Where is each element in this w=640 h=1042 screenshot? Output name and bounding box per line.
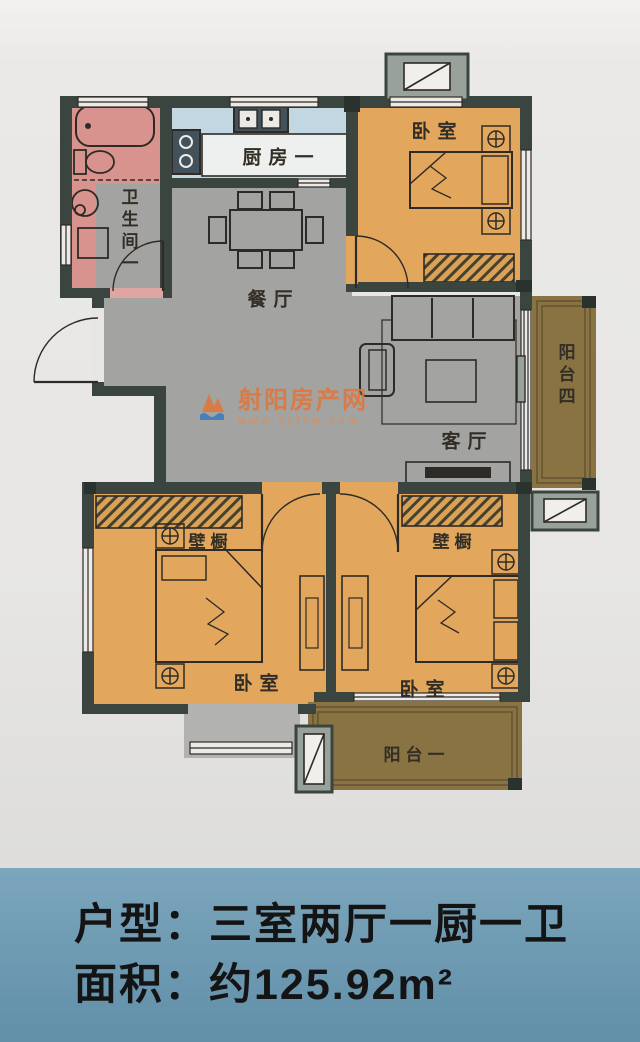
- kitchen-top-window: [230, 97, 318, 107]
- closet-right-band: [402, 496, 502, 526]
- kitchen-pass-through: [298, 179, 330, 187]
- kitchen-label: 厨房一: [235, 143, 320, 170]
- bedroom-top-window: [390, 97, 462, 107]
- entrance-door: [34, 308, 104, 382]
- bedroom-top-label: 卧室: [404, 117, 463, 144]
- bathroom-label: 卫生间一: [116, 188, 141, 276]
- closet-right-label: 壁橱: [428, 528, 477, 553]
- stove: [172, 130, 200, 174]
- area-text: 面积：约125.92m²: [74, 950, 454, 1012]
- balcony-bottom-label: 阳台一: [379, 741, 450, 766]
- kitchen-sink: [234, 106, 288, 132]
- radiator-band: [424, 254, 514, 282]
- bedroom-left-window: [83, 548, 93, 652]
- ac-platform-top: [386, 54, 468, 100]
- footer-band: 户型：三室两厅一厨一卫 面积：约125.92m²: [0, 868, 640, 1042]
- balcony-right-label: 阳台四: [553, 343, 578, 409]
- bedroom-top-right-window: [521, 150, 531, 240]
- bathroom-top-window: [78, 97, 148, 107]
- dining-label: 餐厅: [240, 285, 299, 312]
- bedroom-left-label: 卧室: [226, 669, 285, 696]
- bathroom-left-window: [61, 225, 71, 265]
- layout-type-text: 户型：三室两厅一厨一卫: [74, 890, 569, 952]
- ac-platform-bottom: [296, 726, 332, 792]
- closet-left-label: 壁橱: [184, 528, 233, 553]
- sofa: [392, 296, 514, 340]
- living-label: 客厅: [434, 427, 493, 454]
- floorplan-drawing: [0, 0, 640, 870]
- ac-platform-right: [532, 492, 598, 530]
- bedroom-right-label: 卧室: [392, 675, 451, 702]
- bay-window: [190, 742, 292, 754]
- page-background: 厨房一 卫生间一 餐厅 客厅 卧室 卧室 卧室 壁橱 壁橱 阳台四 阳台一 射阳…: [0, 0, 640, 1042]
- closet-left-band: [96, 496, 242, 528]
